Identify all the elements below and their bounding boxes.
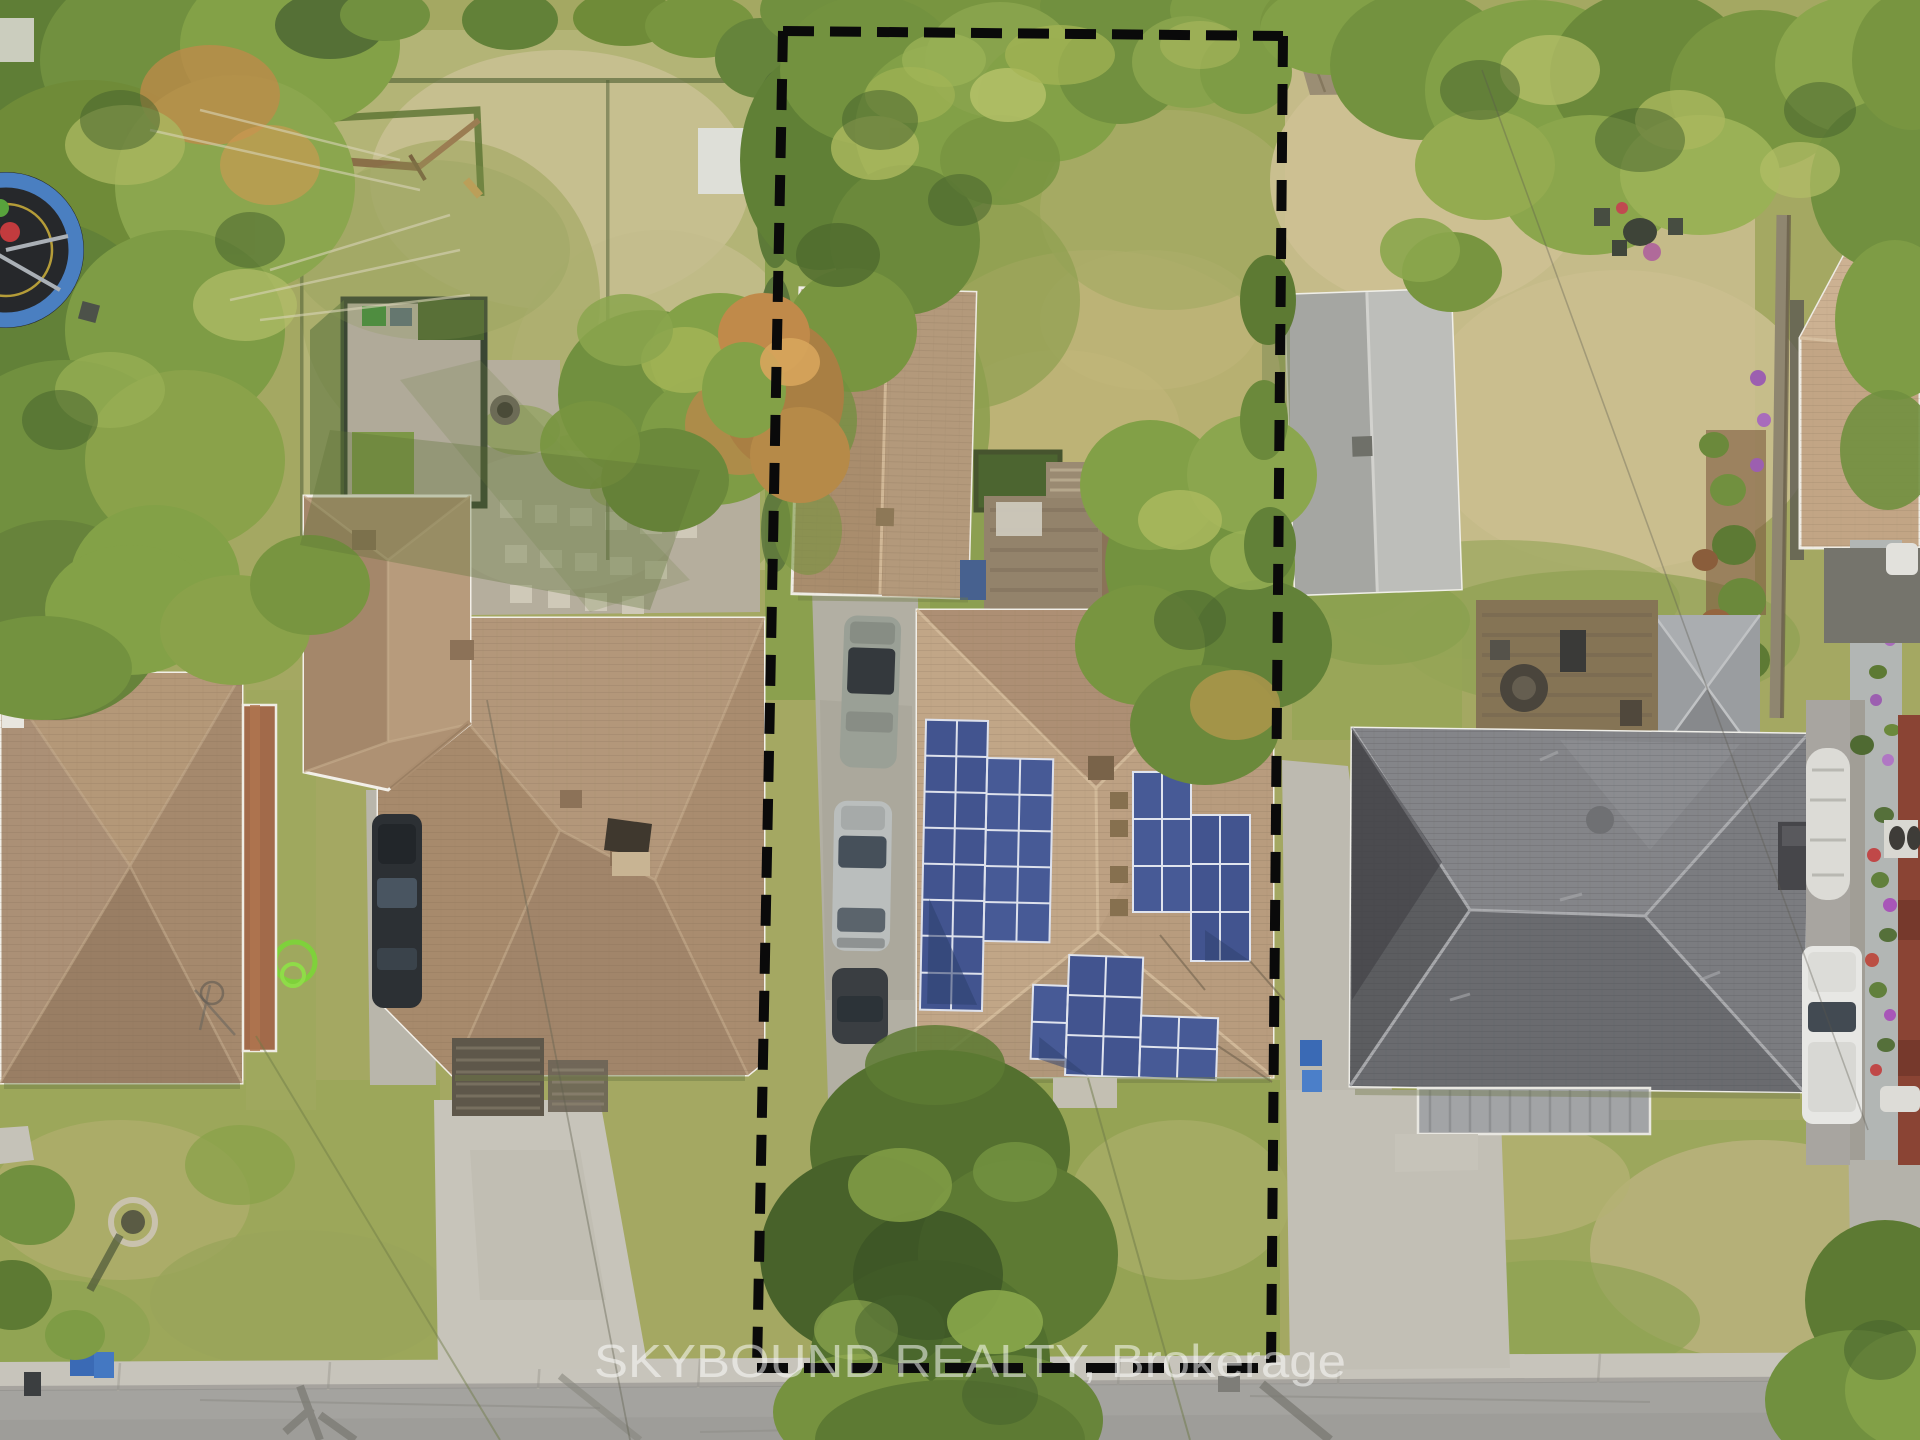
- svg-text:SKYBOUND REALTY, Brokerage: SKYBOUND REALTY, Brokerage: [594, 1335, 1346, 1387]
